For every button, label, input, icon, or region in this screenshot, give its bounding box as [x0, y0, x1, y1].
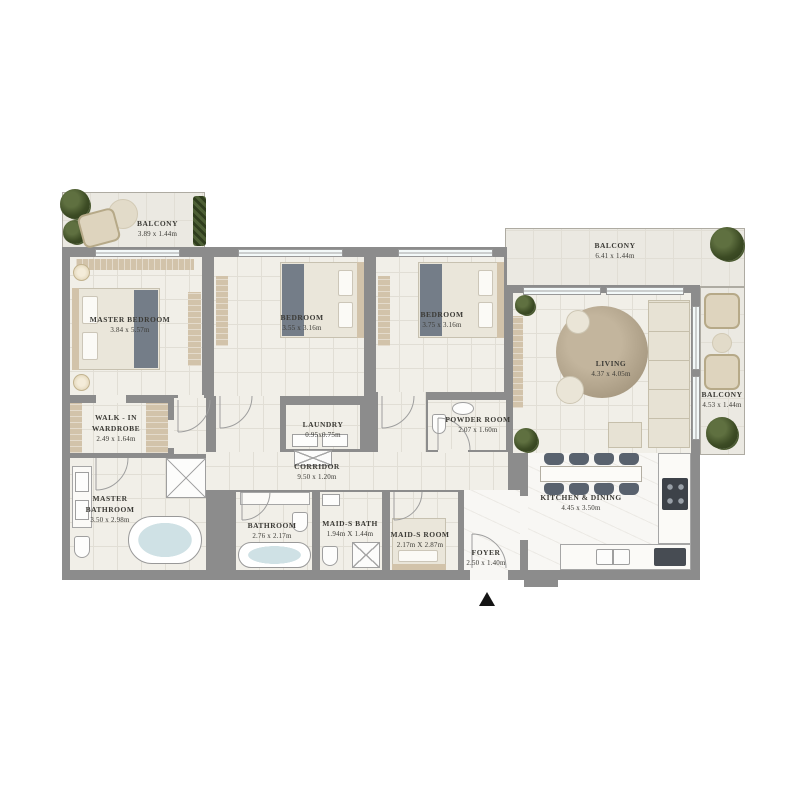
room-label-laundry: LAUNDRY0.95x0.75m: [288, 420, 358, 441]
room-label-corridor: CORRIDOR9.50 x 1.20m: [285, 462, 349, 483]
room-label-foyer: FOYER2.50 x 1.40m: [458, 548, 514, 569]
floor-plan: BALCONY3.89 x 1.44m MASTER BEDROOM3.84 x…: [0, 0, 800, 800]
room-label-bedroom-3: BEDROOM3.75 x 3.16m: [397, 310, 487, 331]
room-label-living: LIVING4.37 x 4.05m: [566, 359, 656, 380]
room-label-maids-bath: MAID-S BATH1.94m X 1.44m: [316, 519, 384, 540]
room-label-wardrobe: WALK - IN WARDROBE2.49 x 1.64m: [84, 413, 148, 445]
room-label-master-bathroom: MASTER BATHROOM3.50 x 2.98m: [80, 494, 140, 526]
room-label-balcony-top-left: BALCONY3.89 x 1.44m: [110, 219, 205, 240]
room-label-kitchen-dining: KITCHEN & DINING4.45 x 3.50m: [535, 493, 627, 514]
room-label-bedroom-2: BEDROOM3.55 x 3.16m: [257, 313, 347, 334]
room-label-bathroom: BATHROOM2.76 x 2.17m: [240, 521, 304, 542]
room-label-balcony-right: BALCONY4.53 x 1.44m: [690, 390, 754, 411]
door-swing-arcs: [0, 0, 800, 800]
room-label-maids-room: MAID-S ROOM2.17m X 2.87m: [386, 530, 454, 551]
room-label-powder-room: POWDER ROOM2.07 x 1.60m: [436, 415, 520, 436]
room-label-master-bedroom: MASTER BEDROOM3.84 x 5.57m: [85, 315, 175, 336]
entrance-marker: [479, 592, 495, 606]
room-label-balcony-top-right: BALCONY6.41 x 1.44m: [570, 241, 660, 262]
